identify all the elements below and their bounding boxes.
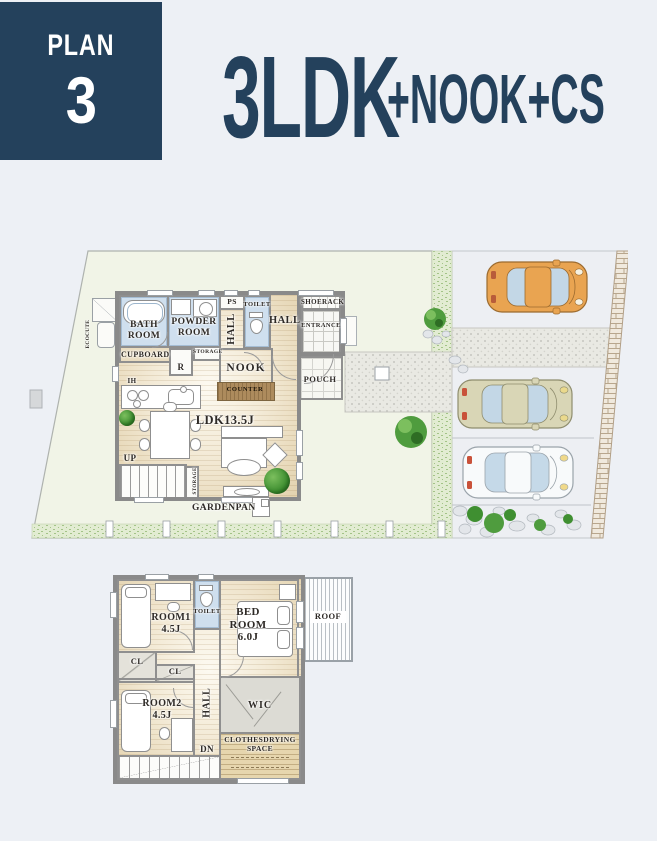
- page-title-suffix: +NOOK+CS: [387, 64, 605, 134]
- label-roof: ROOF: [310, 611, 346, 623]
- label-toilet-2f: TOILET: [193, 608, 221, 615]
- label-ps: PS: [221, 298, 243, 307]
- plan-number: 3: [65, 67, 96, 133]
- label-clothes-drying: CLOTHESDRYING SPACE: [221, 736, 299, 753]
- approach-path: [345, 352, 452, 412]
- page-title: 3LDK: [222, 39, 399, 155]
- window: [298, 290, 334, 296]
- clothes-rail: [231, 757, 289, 758]
- plan-word: PLAN: [48, 29, 115, 63]
- window: [296, 627, 304, 649]
- label-cupboard: CUPBOARD: [121, 350, 169, 359]
- window: [110, 700, 117, 728]
- car-beige: [458, 378, 572, 430]
- tv: [234, 488, 260, 496]
- label-gardenpan: GARDENPAN: [192, 503, 254, 514]
- label-toilet-1f: TOILET: [243, 301, 271, 308]
- window: [145, 574, 169, 580]
- label-entrance: ENTRANCE: [301, 322, 341, 329]
- label-room1: ROOM1 4.5J: [146, 612, 196, 635]
- label-shoerack: SHOERACK: [301, 298, 341, 306]
- label-hall-side: HALL: [226, 312, 238, 346]
- utility-box: [30, 390, 42, 408]
- window: [110, 592, 117, 618]
- window: [112, 366, 119, 382]
- label-hall-1f: HALL: [269, 315, 299, 327]
- car-orange: [487, 260, 587, 314]
- label-ih: IH: [122, 377, 142, 385]
- label-counter: COUNTER: [217, 386, 273, 393]
- washer-drum: [199, 302, 213, 316]
- floor-plan-page: PLAN 3 3LDK +NOOK+CS: [0, 0, 657, 841]
- label-wic: WIC: [230, 700, 290, 712]
- label-refrigerator: R: [169, 362, 193, 372]
- window: [248, 290, 260, 296]
- label-cl2: CL: [157, 667, 193, 677]
- window: [134, 497, 164, 503]
- label-bedroom: BED ROOM 6.0J: [226, 606, 270, 644]
- label-pouch: POUCH: [299, 375, 341, 385]
- label-ldk: LDK13.5J: [190, 413, 260, 427]
- label-pantry: STORAGE: [193, 349, 221, 355]
- window: [296, 601, 304, 623]
- window: [296, 462, 303, 480]
- plan-badge: PLAN 3: [0, 2, 162, 160]
- gate-post: [375, 367, 389, 380]
- ih-burner: [138, 390, 149, 401]
- gardenpan-tap: [261, 499, 269, 507]
- faucet: [180, 386, 187, 393]
- window: [198, 290, 215, 296]
- window: [147, 290, 173, 296]
- window: [198, 574, 214, 580]
- label-ecocute: ECOCUTE: [85, 317, 91, 351]
- label-bathroom: BATH ROOM: [124, 320, 164, 342]
- window: [237, 778, 289, 784]
- label-hall-2f: HALL: [201, 686, 213, 720]
- clothes-rail: [231, 767, 289, 768]
- label-room2: ROOM2 4.5J: [137, 698, 187, 721]
- ih-burner: [133, 400, 141, 408]
- label-powder: POWDER ROOM: [169, 317, 219, 339]
- label-cl1: CL: [119, 657, 155, 667]
- label-nook: NOOK: [219, 362, 273, 375]
- ecocute-tank: [97, 322, 115, 348]
- window: [296, 430, 303, 456]
- driveway: [452, 328, 614, 367]
- window: [224, 290, 238, 296]
- car-white: [463, 445, 573, 500]
- label-up: UP: [118, 453, 142, 463]
- label-dn: DN: [196, 744, 218, 754]
- front-door: [340, 318, 347, 344]
- label-under-stairs-storage: STORAGE: [193, 461, 199, 501]
